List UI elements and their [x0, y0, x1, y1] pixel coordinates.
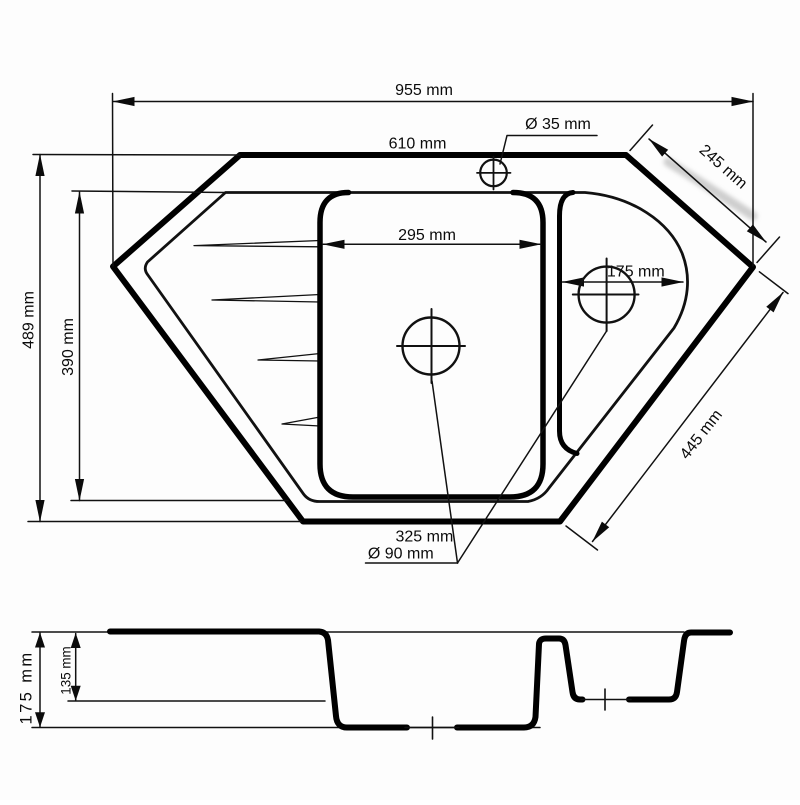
svg-text:175 mm: 175 mm [607, 264, 665, 281]
svg-text:390 mm: 390 mm [60, 318, 77, 376]
svg-text:175 mm: 175 mm [18, 650, 36, 724]
svg-text:489 mm: 489 mm [21, 291, 38, 349]
svg-text:325 mm: 325 mm [396, 529, 454, 546]
svg-text:295 mm: 295 mm [398, 227, 456, 244]
svg-text:135 mm: 135 mm [59, 646, 74, 694]
svg-text:955 mm: 955 mm [395, 82, 453, 99]
svg-text:610 mm: 610 mm [389, 136, 447, 153]
svg-text:Ø 90 mm: Ø 90 mm [368, 546, 434, 563]
svg-text:Ø 35 mm: Ø 35 mm [525, 116, 591, 133]
svg-text:445 mm: 445 mm [677, 407, 726, 463]
